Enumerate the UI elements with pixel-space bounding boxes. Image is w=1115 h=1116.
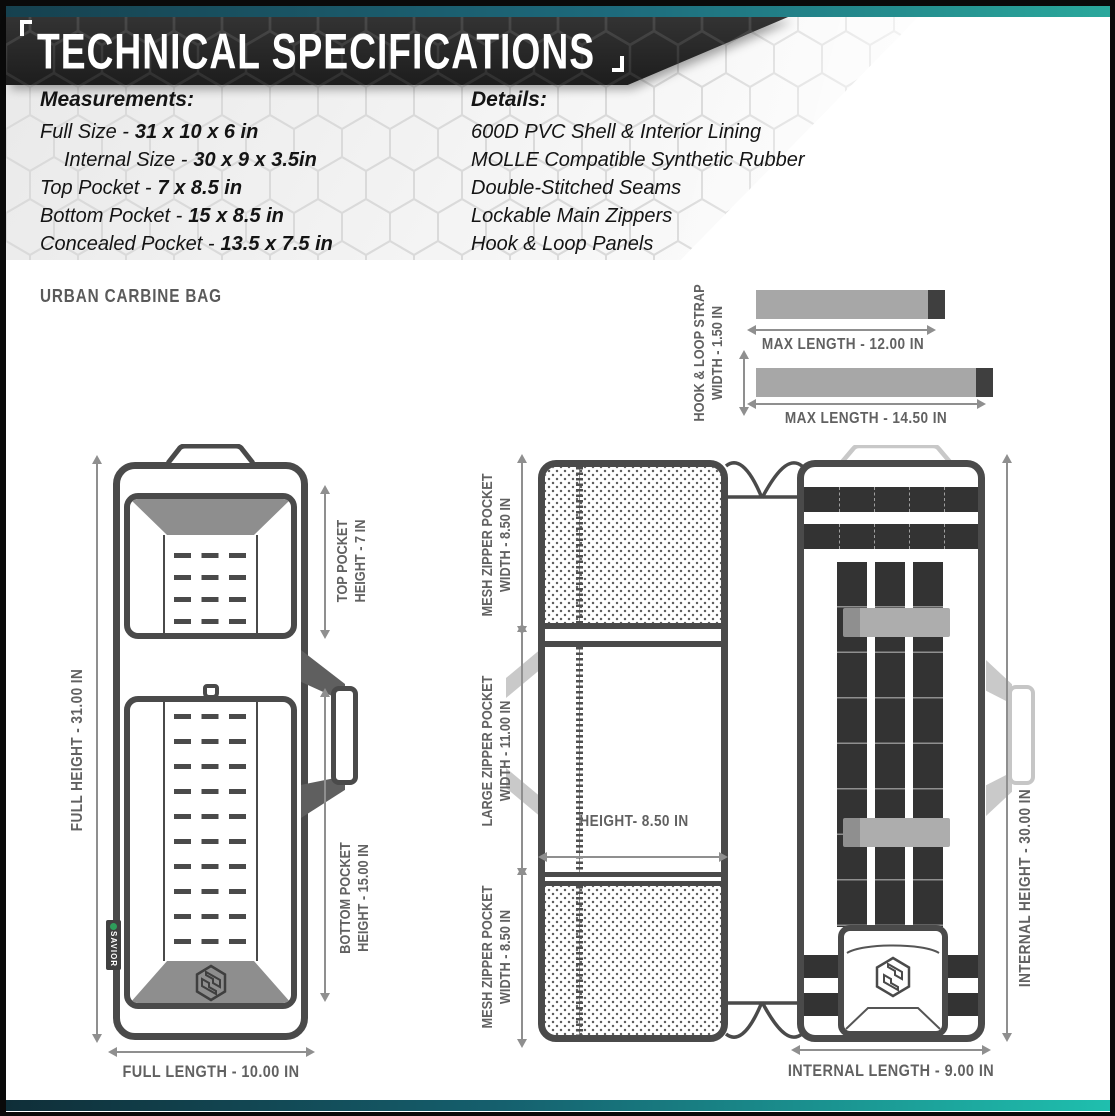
- title-bracket-left-icon: [20, 20, 32, 36]
- mesh-bottom-label: MESH ZIPPER POCKETWIDTH - 8.50 IN: [479, 885, 515, 1028]
- spec-sheet: TECHNICAL SPECIFICATIONS Measurements: F…: [0, 0, 1115, 1116]
- molle-row: [174, 597, 246, 602]
- zipper: [576, 886, 583, 1035]
- strap-long: [756, 368, 993, 397]
- mesh-top-label: MESH ZIPPER POCKETWIDTH - 8.50 IN: [479, 473, 515, 616]
- full-height-label: FULL HEIGHT - 31.00 IN: [69, 669, 87, 832]
- measurement-item: Full Size -31 x 10 x 6 in: [40, 118, 333, 146]
- molle-row: [174, 789, 246, 794]
- zipper: [576, 647, 583, 872]
- measurement-item: Bottom Pocket -15 x 8.5 in: [40, 202, 333, 230]
- molle-row: [174, 619, 246, 624]
- bottom-pocket-arrow: [324, 697, 326, 993]
- top-handle: [166, 444, 256, 464]
- molle-row: [174, 714, 246, 719]
- molle-row: [174, 889, 246, 894]
- full-length-label: FULL LENGTH - 10.00 IN: [123, 1062, 300, 1082]
- molle-row: [174, 864, 246, 869]
- title-bracket-right-icon: [612, 56, 624, 72]
- details-heading: Details:: [471, 88, 805, 112]
- mesh-top-arrow: [521, 463, 523, 626]
- pocket-height-label: HEIGHT- 8.50 IN: [579, 813, 688, 831]
- pocket-divider: [545, 872, 721, 886]
- detail-item: 600D PVC Shell & Interior Lining: [471, 118, 805, 146]
- molle-row: [174, 939, 246, 944]
- top-accent-bar: [6, 6, 1110, 17]
- bottom-accent-bar: [6, 1100, 1110, 1111]
- large-pocket-arrow: [521, 632, 523, 868]
- retention-strap-gray: [843, 608, 950, 637]
- brand-logo-icon: [110, 923, 117, 930]
- measurement-item: Concealed Pocket -13.5 x 7.5 in: [40, 230, 333, 258]
- molle-row: [174, 764, 246, 769]
- panel-connector: [724, 995, 804, 1042]
- large-zipper-pocket: [545, 647, 721, 872]
- full-height-arrow: [96, 464, 98, 1034]
- full-length-arrow: [117, 1051, 306, 1053]
- molle-row: [174, 914, 246, 919]
- molle-row: [174, 575, 246, 580]
- strap-long-arrow: [756, 403, 977, 405]
- top-pocket: [124, 493, 297, 639]
- pocket-flap: [130, 961, 291, 1003]
- mesh-zipper-pocket-bottom: [545, 886, 721, 1035]
- bottom-pocket-label: BOTTOM POCKETHEIGHT - 15.00 IN: [337, 842, 373, 954]
- internal-length-arrow: [800, 1049, 982, 1051]
- strap-short-arrow: [756, 329, 927, 331]
- measurement-item: Internal Size -30 x 9 x 3.5in: [40, 146, 333, 174]
- molle-row: [174, 814, 246, 819]
- inside-right-panel: [797, 460, 985, 1042]
- mesh-bottom-arrow: [521, 875, 523, 1039]
- zipper: [576, 467, 583, 623]
- retention-strap-gray: [843, 818, 950, 847]
- strap-width-arrow: [743, 359, 745, 407]
- pocket-divider: [545, 623, 721, 647]
- brand-tag: SAVIOR: [106, 920, 121, 970]
- measurement-item: Top Pocket -7 x 8.5 in: [40, 174, 333, 202]
- detail-item: MOLLE Compatible Synthetic Rubber: [471, 146, 805, 174]
- strap-width-label: HOOK & LOOP STRAPWIDTH - 1.50 IN: [691, 284, 727, 421]
- side-handle-back: [1008, 685, 1035, 785]
- panel-connector: [724, 458, 804, 503]
- strap-long-length-label: MAX LENGTH - 14.50 IN: [785, 410, 947, 428]
- page-title: TECHNICAL SPECIFICATIONS: [37, 25, 595, 82]
- top-pocket-arrow: [324, 494, 326, 630]
- pocket-clip: [203, 684, 219, 699]
- bottom-pocket: [124, 696, 297, 1009]
- strap-end-cap: [928, 290, 945, 319]
- pocket-flap: [130, 499, 291, 535]
- molle-row: [174, 839, 246, 844]
- brand-hexagon-icon: [192, 963, 230, 1003]
- product-name: URBAN CARBINE BAG: [40, 285, 222, 307]
- molle-strap-horizontal: [804, 487, 978, 512]
- large-pocket-label: LARGE ZIPPER POCKETWIDTH - 11.00 IN: [479, 676, 515, 827]
- detail-item: Double-Stitched Seams: [471, 174, 805, 202]
- brand-hexagon-icon: [877, 958, 909, 996]
- measurements-heading: Measurements:: [40, 88, 333, 112]
- strap-end-cap: [976, 368, 993, 397]
- details-block: Details: 600D PVC Shell & Interior Linin…: [471, 88, 805, 258]
- inside-left-panel: [538, 460, 728, 1042]
- molle-strap-horizontal: [804, 524, 978, 549]
- accessory-pouch: [838, 925, 948, 1037]
- internal-height-label: INTERNAL HEIGHT - 30.00 IN: [1017, 789, 1035, 987]
- detail-item: Lockable Main Zippers: [471, 202, 805, 230]
- strap-short-length-label: MAX LENGTH - 12.00 IN: [762, 336, 924, 354]
- mesh-zipper-pocket-top: [545, 467, 721, 623]
- pocket-height-arrow: [547, 856, 719, 858]
- pouch-bevel: [844, 931, 942, 1031]
- internal-height-arrow: [1006, 463, 1008, 1033]
- molle-row: [174, 553, 246, 558]
- top-pocket-label: TOP POCKETHEIGHT - 7 IN: [334, 520, 370, 603]
- side-handle: [331, 686, 358, 785]
- strap-short: [756, 290, 945, 319]
- measurements-block: Measurements: Full Size -31 x 10 x 6 in …: [40, 88, 333, 258]
- internal-length-label: INTERNAL LENGTH - 9.00 IN: [788, 1061, 994, 1081]
- molle-row: [174, 739, 246, 744]
- detail-item: Hook & Loop Panels: [471, 230, 805, 258]
